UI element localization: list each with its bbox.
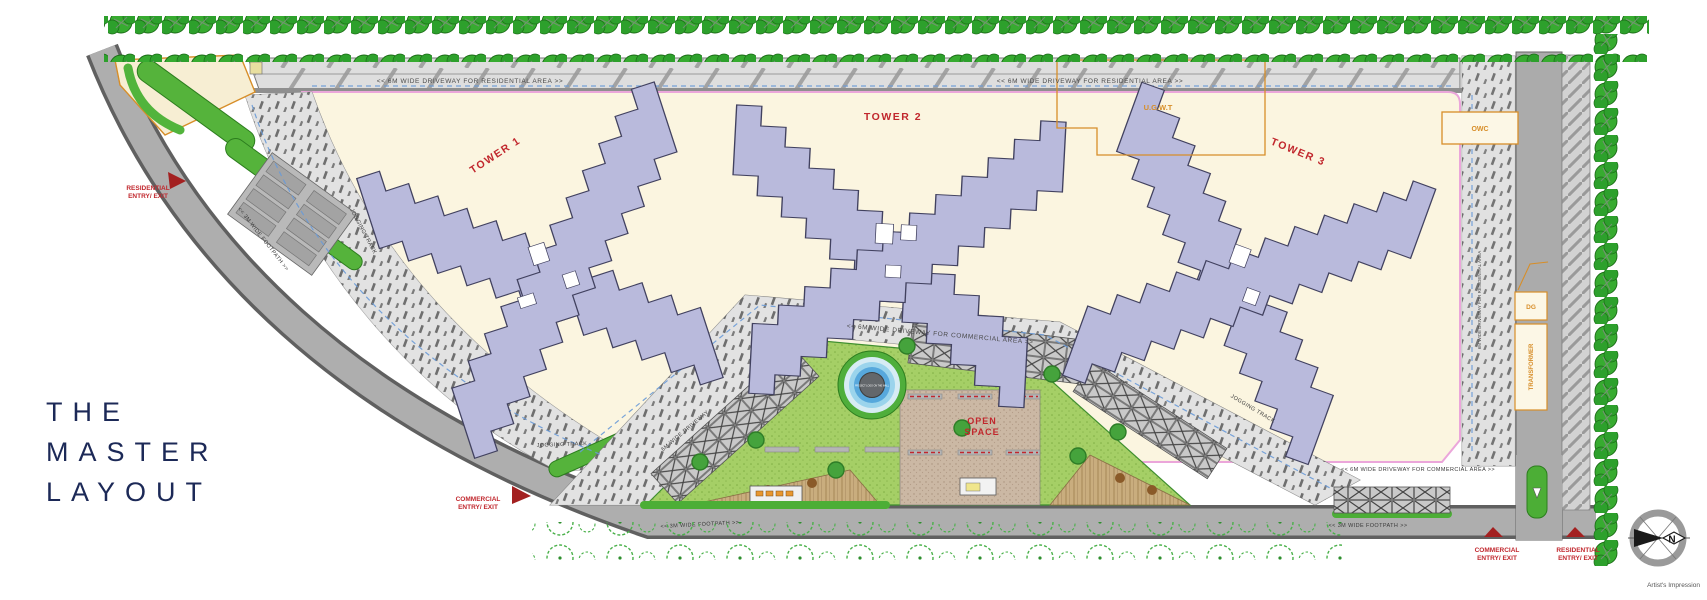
svg-text:RESIDENTIAL: RESIDENTIAL <box>126 185 169 192</box>
owc-box: OWC <box>1442 112 1518 144</box>
right-driveway-label: 6M WIDE DRIVEWAY FOR RESIDENTIAL AREA <box>1477 251 1482 350</box>
tower-2-label: TOWER 2 <box>864 111 922 123</box>
compass-north-label: N <box>1668 535 1675 546</box>
transformer-label: TRANSFORMER <box>1529 343 1535 390</box>
compass-needle <box>1634 529 1663 547</box>
svg-text:COMMERCIAL: COMMERCIAL <box>1475 547 1520 554</box>
svg-text:ENTRY/ EXIT: ENTRY/ EXIT <box>458 504 498 511</box>
bottom-right-parking <box>1334 487 1450 513</box>
site-plan: STP <box>0 0 1707 600</box>
res-driveway-label-2: << 6M WIDE DRIVEWAY FOR RESIDENTIAL AREA… <box>997 78 1184 85</box>
owc-label: OWC <box>1471 126 1488 133</box>
hedge-strip-1 <box>640 501 890 509</box>
top-driveway <box>248 58 1462 93</box>
residential-entry-road <box>1516 455 1562 540</box>
commercial-entry-left: COMMERCIAL ENTRY/ EXIT <box>456 486 531 511</box>
svg-text:ENTRY/ EXIT: ENTRY/ EXIT <box>128 193 168 200</box>
tree-row-bottom <box>532 522 1342 560</box>
svg-text:RESIDENTIAL: RESIDENTIAL <box>1556 547 1599 554</box>
compass-rose: N <box>1628 513 1690 563</box>
res-driveway-label-1: << 6M WIDE DRIVEWAY FOR RESIDENTIAL AREA… <box>377 78 564 85</box>
svg-text:OPEN: OPEN <box>967 416 997 426</box>
com-driveway-label-2: << 6M WIDE DRIVEWAY FOR COMMERCIAL AREA … <box>1341 467 1495 473</box>
tree-row-top <box>104 16 1649 62</box>
open-space-label: OPEN SPACE <box>964 416 999 437</box>
transformer-box: TRANSFORMER <box>1515 324 1547 410</box>
svg-text:SPACE: SPACE <box>964 427 999 437</box>
ugwt-label: U.G.W.T <box>1144 103 1173 112</box>
svg-text:ENTRY/ EXIT: ENTRY/ EXIT <box>1558 555 1598 562</box>
svg-text:ENTRY/ EXIT: ENTRY/ EXIT <box>1477 555 1517 562</box>
tree-column-right <box>1584 34 1624 566</box>
water-feature: PROJECT LOGO ON THE WALL <box>838 351 906 419</box>
svg-text:COMMERCIAL: COMMERCIAL <box>456 496 501 503</box>
pool-note: PROJECT LOGO ON THE WALL <box>855 385 890 388</box>
master-layout-page: THE MASTER LAYOUT <box>0 0 1707 600</box>
artist-impression-credit: Artist's Impression <box>1647 582 1700 589</box>
dg-label: DG <box>1526 304 1536 311</box>
